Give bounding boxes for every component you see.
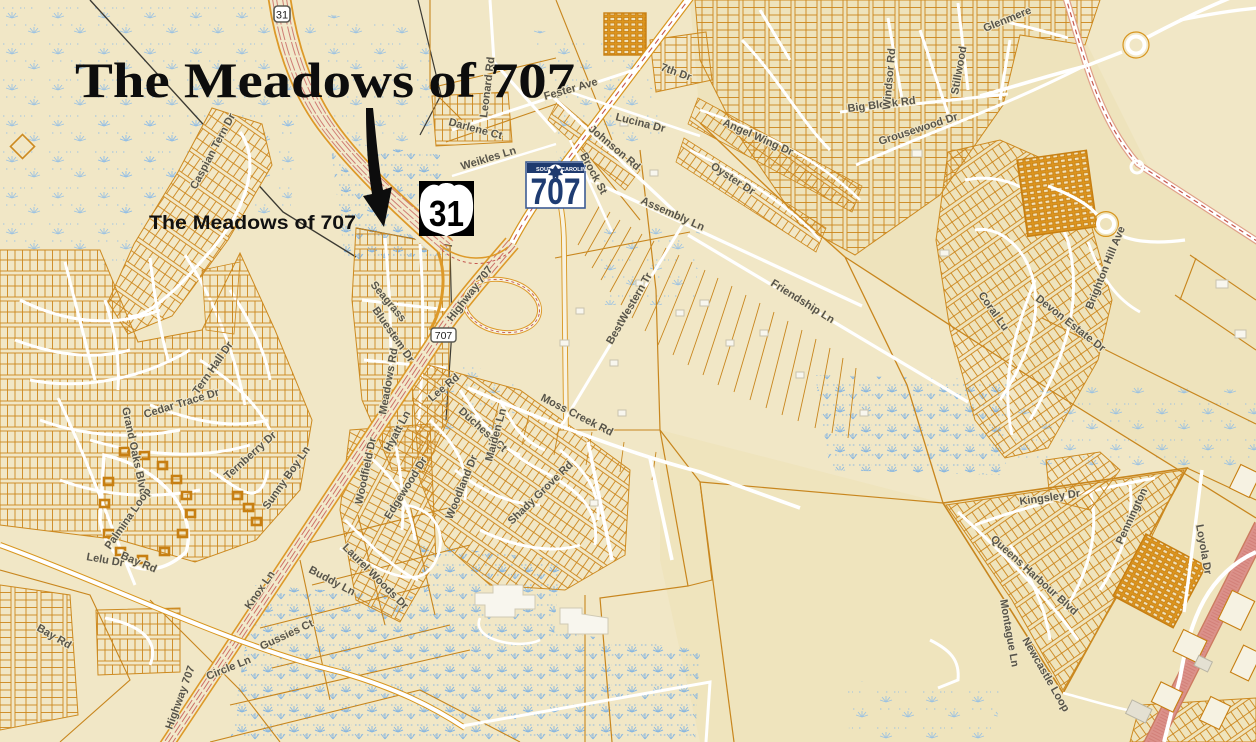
svg-text:The Meadows of 707: The Meadows of 707 [75,52,575,108]
svg-text:31: 31 [276,10,288,22]
svg-text:The Meadows of 707: The Meadows of 707 [149,213,356,234]
svg-text:707: 707 [531,171,581,212]
svg-text:31: 31 [429,193,464,234]
svg-text:707: 707 [435,330,453,342]
